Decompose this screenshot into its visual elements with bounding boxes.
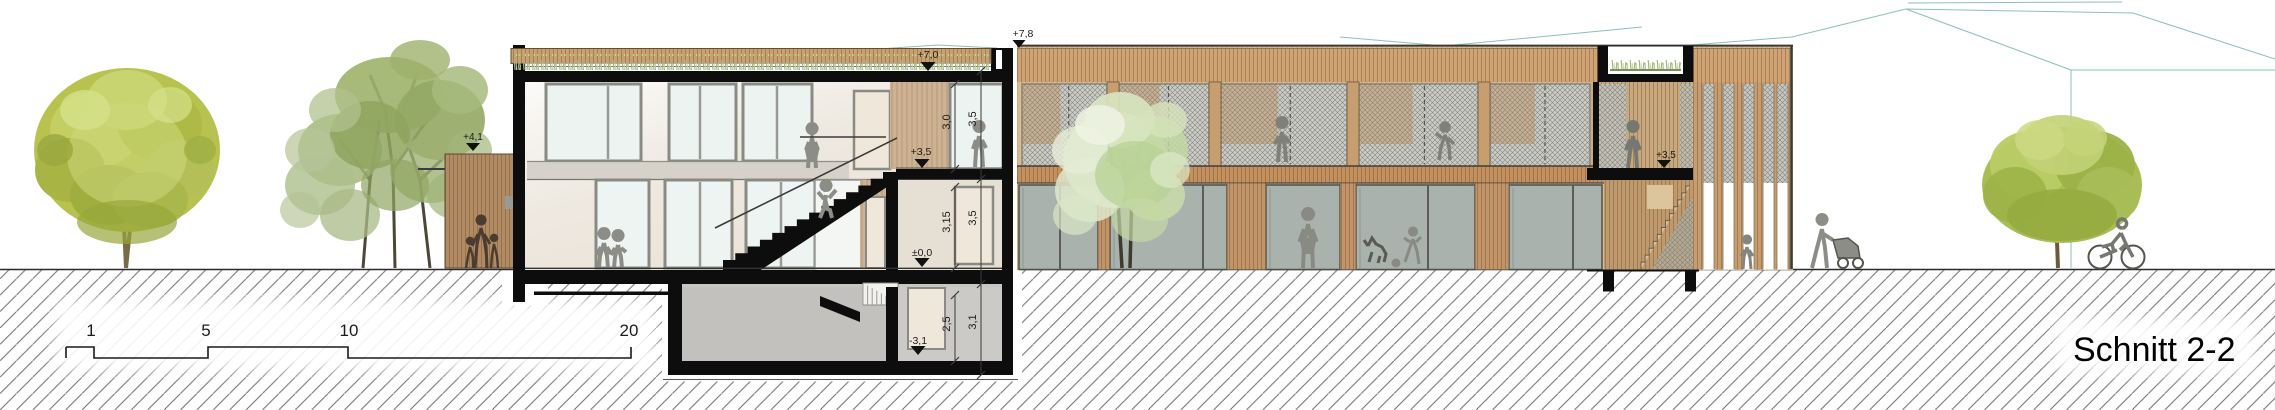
svg-text:3,15: 3,15 xyxy=(941,211,953,232)
svg-text:Schnitt 2-2: Schnitt 2-2 xyxy=(2073,331,2236,369)
svg-text:3,5: 3,5 xyxy=(967,111,979,126)
svg-text:3,1: 3,1 xyxy=(967,314,979,329)
svg-text:+7,8: +7,8 xyxy=(1013,28,1034,40)
svg-text:1: 1 xyxy=(86,321,95,340)
svg-text:3,0: 3,0 xyxy=(941,114,953,129)
svg-text:-3,1: -3,1 xyxy=(909,335,927,347)
svg-text:+7,0: +7,0 xyxy=(918,49,939,61)
svg-text:10: 10 xyxy=(340,321,359,340)
svg-text:2,5: 2,5 xyxy=(941,316,953,331)
svg-text:±0,0: ±0,0 xyxy=(912,247,933,259)
svg-text:+4,1: +4,1 xyxy=(463,132,483,143)
svg-text:5: 5 xyxy=(201,321,210,340)
svg-text:20: 20 xyxy=(620,321,639,340)
svg-text:+3,5: +3,5 xyxy=(911,146,932,158)
svg-text:3,5: 3,5 xyxy=(967,210,979,225)
svg-text:+3,5: +3,5 xyxy=(1656,150,1676,161)
